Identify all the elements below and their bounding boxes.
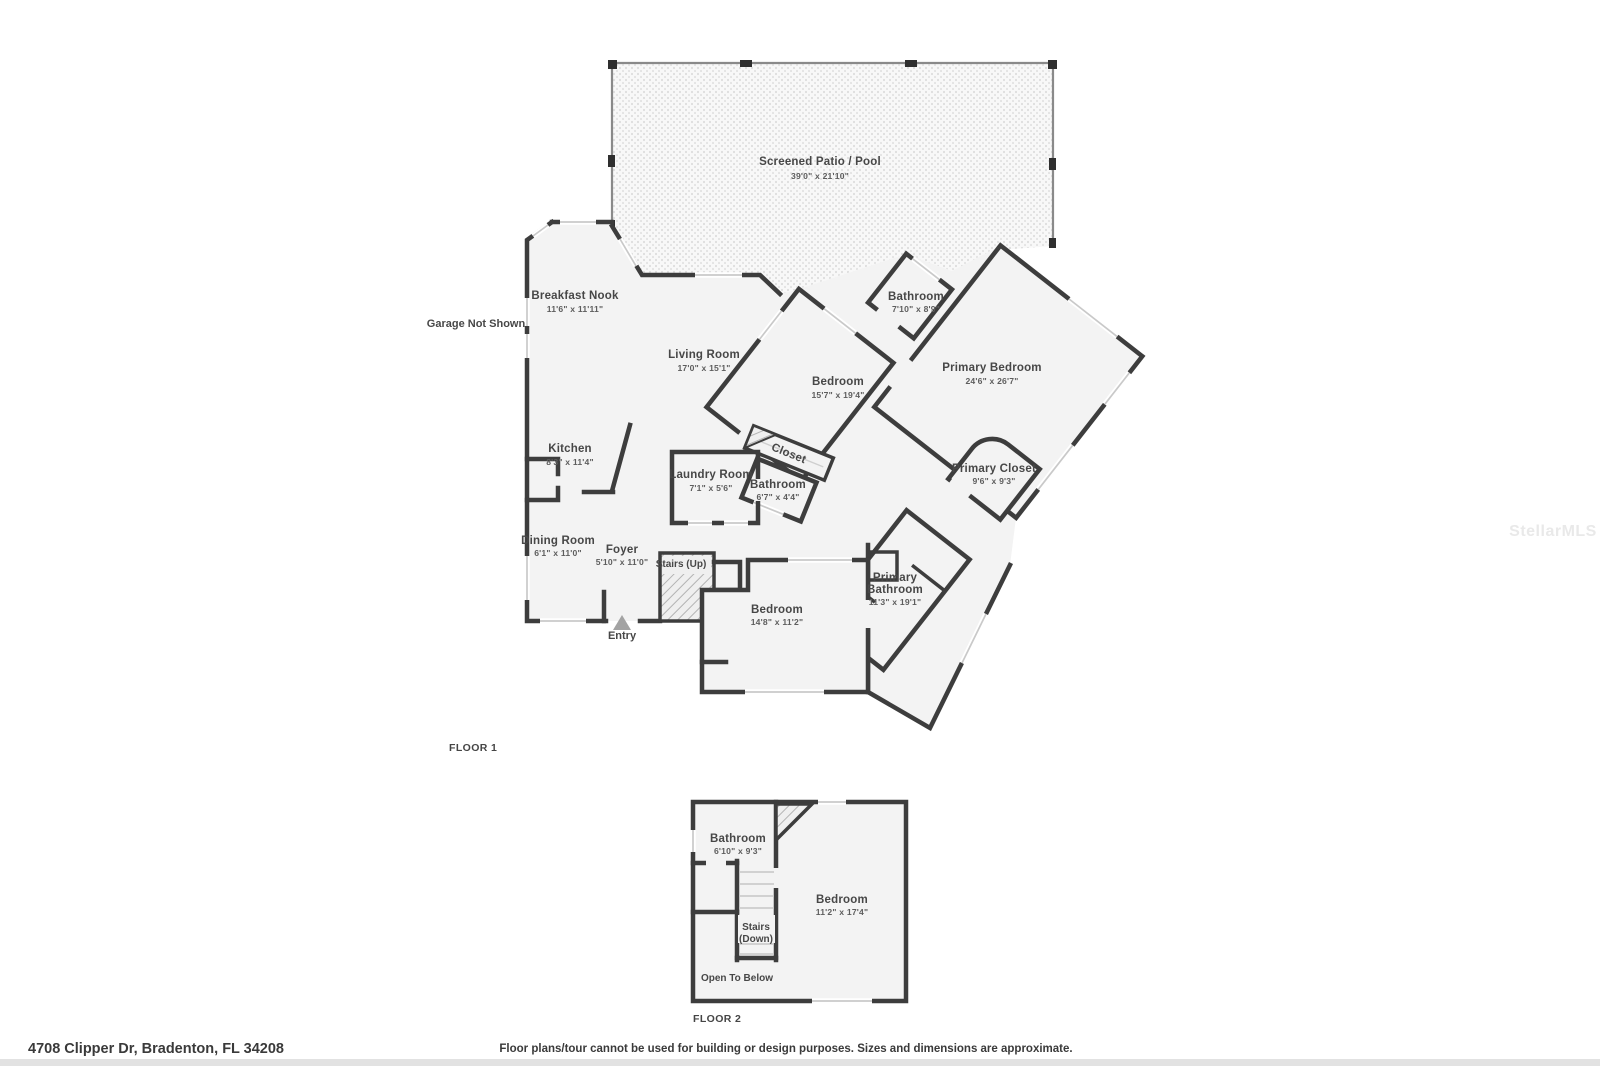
room-dims-laundry: 7'1" x 5'6" bbox=[689, 483, 732, 493]
room-dims-bedroom-wing: 15'7" x 19'4" bbox=[811, 390, 864, 400]
room-dims-bath-small: 6'7" x 4'4" bbox=[756, 492, 799, 502]
room-label-primary-closet: Primary Closet bbox=[952, 463, 1036, 475]
room-label-bedroom-wing: Bedroom bbox=[812, 376, 864, 388]
room-label-primary-bedroom: Primary Bedroom bbox=[942, 362, 1042, 374]
floor1-plan: Screened Patio / Pool 39'0" x 21'10" Gar… bbox=[427, 60, 1143, 754]
room-dims-breakfast-nook: 11'6" x 11'11" bbox=[547, 304, 604, 314]
room-label-kitchen: Kitchen bbox=[548, 443, 592, 455]
room-label-laundry: Laundry Room bbox=[669, 469, 753, 481]
room-label-living-room: Living Room bbox=[668, 349, 740, 361]
garage-note: Garage Not Shown bbox=[427, 318, 526, 330]
room-dims-foyer: 5'10" x 11'0" bbox=[596, 557, 649, 567]
room-label-foyer: Foyer bbox=[606, 544, 639, 556]
room-dims-f2-bedroom: 11'2" x 17'4" bbox=[816, 907, 869, 917]
room-dims-living-room: 17'0" x 15'1" bbox=[677, 363, 730, 373]
room-label-primary-bath-1: Primary bbox=[873, 572, 918, 584]
room-label-bath-small: Bathroom bbox=[750, 479, 806, 491]
room-label-bath-top: Bathroom bbox=[888, 291, 944, 303]
disclaimer-text: Floor plans/tour cannot be used for buil… bbox=[499, 1043, 1072, 1055]
room-dims-dining: 6'1" x 11'0" bbox=[534, 548, 582, 558]
property-address: 4708 Clipper Dr, Bradenton, FL 34208 bbox=[28, 1041, 284, 1057]
room-dims-bath-top: 7'10" x 8'9" bbox=[892, 304, 940, 314]
stellar-mls-watermark: StellarMLS bbox=[1509, 523, 1597, 540]
room-dims-primary-closet: 9'6" x 9'3" bbox=[972, 476, 1015, 486]
floor-plan-page: Screened Patio / Pool 39'0" x 21'10" Gar… bbox=[0, 0, 1600, 1066]
room-label-dining: Dining Room bbox=[521, 535, 595, 547]
entry-label: Entry bbox=[608, 630, 637, 642]
room-label-primary-bath-2: Bathroom bbox=[867, 584, 923, 596]
room-dims-f2-bathroom: 6'10" x 9'3" bbox=[714, 846, 762, 856]
room-label-bedroom-bottom: Bedroom bbox=[751, 604, 803, 616]
room-dims-primary-bath: 11'3" x 19'1" bbox=[869, 597, 922, 607]
room-dims-bedroom-bottom: 14'8" x 11'2" bbox=[751, 617, 804, 627]
room-label-patio: Screened Patio / Pool bbox=[759, 156, 881, 168]
room-label-breakfast-nook: Breakfast Nook bbox=[531, 290, 619, 302]
floor2-plan: Bathroom 6'10" x 9'3" Stairs (Down) Open… bbox=[693, 802, 906, 1025]
floor-plan-canvas: Screened Patio / Pool 39'0" x 21'10" Gar… bbox=[0, 0, 1600, 1066]
room-label-f2-open-below: Open To Below bbox=[701, 973, 773, 984]
room-label-f2-bathroom: Bathroom bbox=[710, 833, 766, 845]
room-dims-patio: 39'0" x 21'10" bbox=[791, 171, 849, 181]
floor1-label: FLOOR 1 bbox=[449, 742, 497, 754]
room-label-f2-stairs-1: Stairs bbox=[742, 922, 770, 933]
bottom-strip bbox=[0, 1059, 1600, 1066]
floor2-label: FLOOR 2 bbox=[693, 1013, 741, 1025]
floor2-footprint bbox=[693, 802, 906, 1001]
room-label-f2-bedroom: Bedroom bbox=[816, 894, 868, 906]
room-dims-primary-bedroom: 24'6" x 26'7" bbox=[965, 376, 1018, 386]
room-dims-kitchen: 8'3" x 11'4" bbox=[546, 457, 594, 467]
room-label-f2-stairs-2: (Down) bbox=[739, 934, 773, 945]
room-label-stairs-up: Stairs (Up) bbox=[656, 559, 707, 570]
